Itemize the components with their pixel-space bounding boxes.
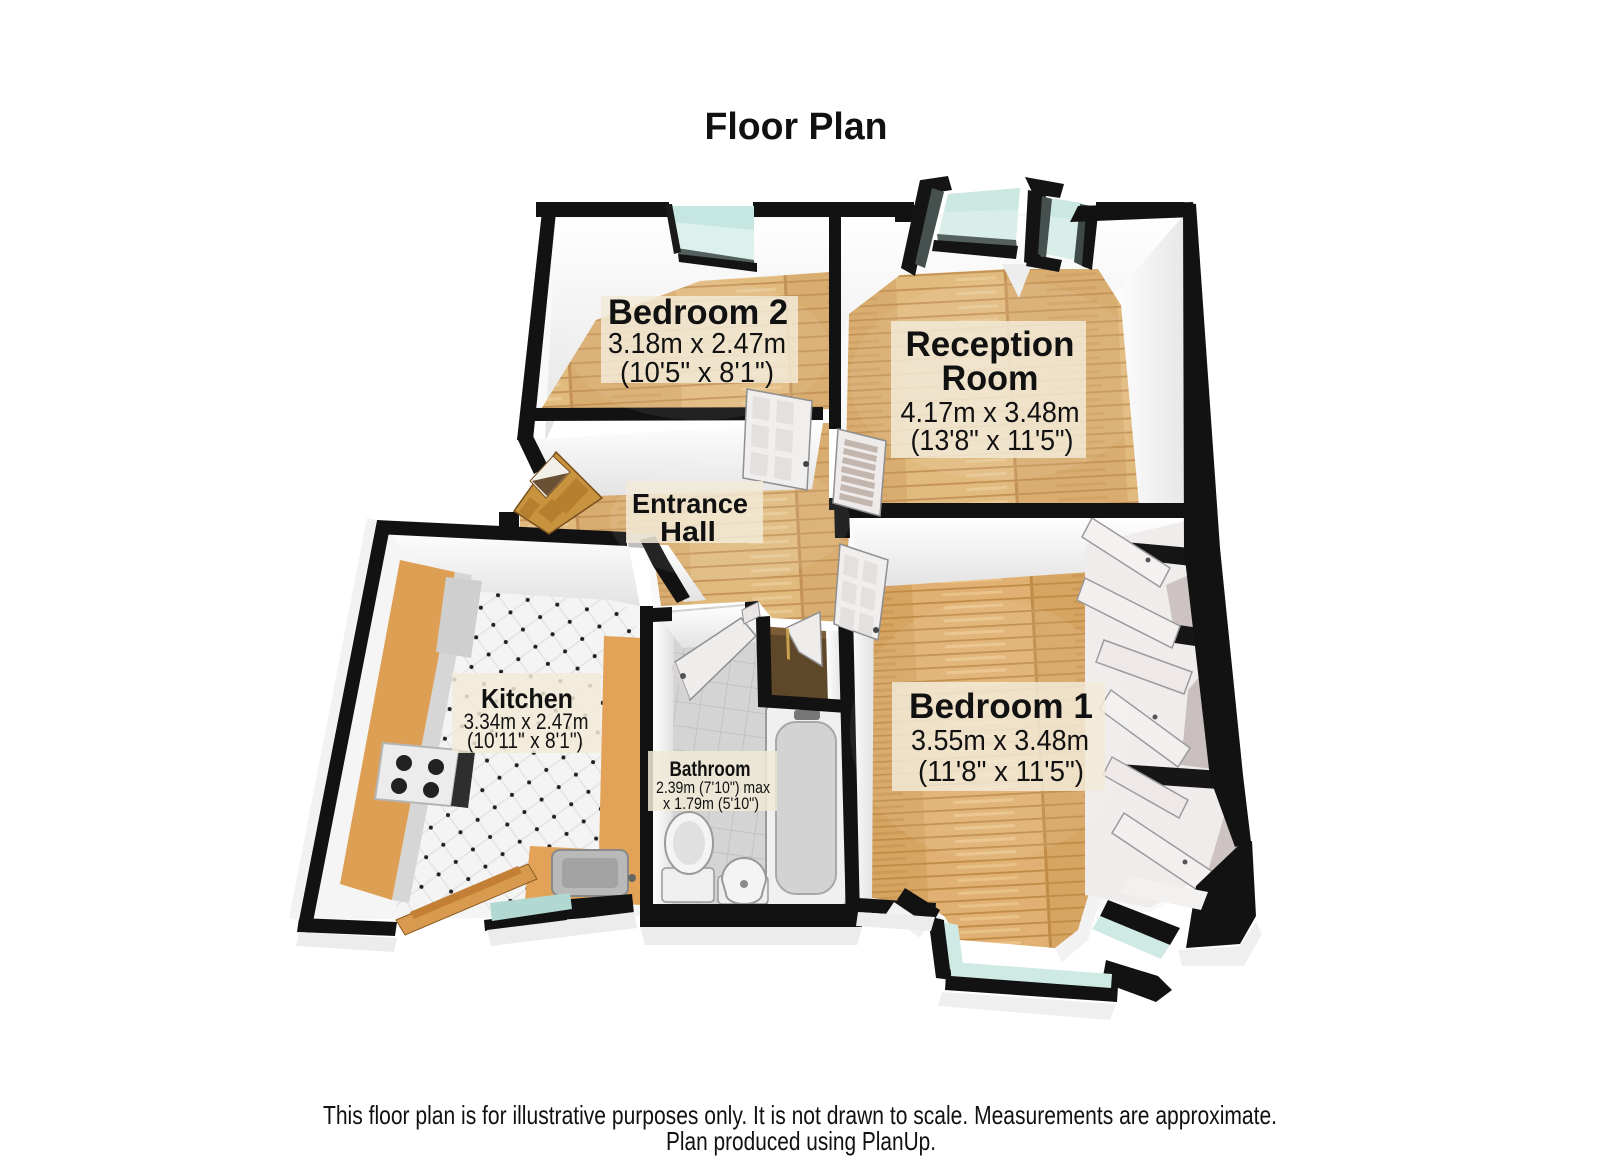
- svg-text:3.55m x 3.48m: 3.55m x 3.48m: [911, 725, 1089, 757]
- svg-text:Plan produced using PlanUp.: Plan produced using PlanUp.: [666, 1126, 936, 1156]
- svg-text:(10'11" x 8'1"): (10'11" x 8'1"): [467, 728, 583, 753]
- svg-text:3.18m x 2.47m: 3.18m x 2.47m: [608, 328, 786, 360]
- svg-text:(13'8" x 11'5"): (13'8" x 11'5"): [911, 425, 1074, 457]
- svg-text:Hall: Hall: [660, 516, 716, 547]
- svg-text:(10'5" x 8'1"): (10'5" x 8'1"): [620, 357, 774, 389]
- svg-text:Entrance: Entrance: [632, 488, 748, 519]
- svg-text:(11'8" x 11'5"): (11'8" x 11'5"): [918, 756, 1084, 788]
- svg-text:Bedroom 2: Bedroom 2: [608, 293, 788, 332]
- svg-text:Bedroom 1: Bedroom 1: [909, 687, 1093, 726]
- svg-text:Floor Plan: Floor Plan: [705, 106, 888, 148]
- svg-text:Room: Room: [942, 359, 1039, 398]
- svg-text:x 1.79m (5'10"): x 1.79m (5'10"): [663, 794, 759, 813]
